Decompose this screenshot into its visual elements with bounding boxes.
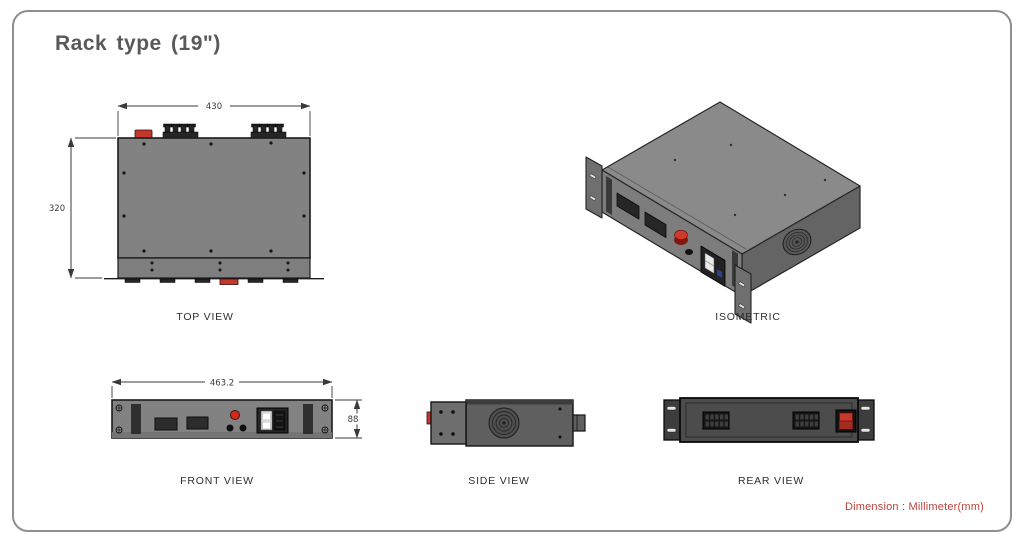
- front-black-button-2: [240, 425, 247, 432]
- front-panel-tabs: [125, 279, 298, 285]
- front-view-drawing: 463.2: [95, 370, 385, 470]
- side-view-drawing: [420, 390, 600, 460]
- terminal-block-2: [251, 124, 286, 138]
- iso-black-button: [685, 249, 693, 255]
- front-vent-right: [303, 404, 313, 434]
- chassis-top-body: [118, 138, 310, 258]
- isometric-drawing: [575, 85, 885, 310]
- front-display-window-1: [155, 418, 177, 430]
- top-width-value: 430: [206, 102, 222, 112]
- front-width-value: 463.2: [210, 379, 234, 389]
- side-view-label: SIDE VIEW: [468, 475, 529, 487]
- front-vent-left: [131, 404, 141, 434]
- top-depth-value: 320: [49, 204, 65, 214]
- front-panel-bottom-strip: [112, 432, 332, 438]
- side-front-block: [431, 402, 466, 444]
- front-red-switch-top: [220, 279, 238, 285]
- isometric-label: ISOMETRIC: [715, 311, 781, 323]
- iso-red-knob: [674, 230, 688, 245]
- front-power-inlet: [257, 408, 288, 433]
- front-red-button: [231, 411, 240, 420]
- terminal-block-1: [163, 124, 198, 138]
- rear-power-switch: [135, 130, 152, 138]
- front-width-dimension: 463.2: [112, 377, 332, 399]
- top-view-label: TOP VIEW: [176, 311, 233, 323]
- rear-power-rocker-switch: [836, 410, 856, 432]
- front-display-window-2: [187, 417, 208, 429]
- front-height-value: 88: [348, 415, 359, 425]
- dimension-unit-note: Dimension : Millimeter(mm): [845, 501, 984, 513]
- top-depth-dimension: 320: [49, 138, 116, 278]
- front-height-dimension: 88: [335, 400, 362, 438]
- front-view-label: FRONT VIEW: [180, 475, 254, 487]
- front-flange: [118, 258, 310, 278]
- iso-vent-left: [606, 176, 612, 215]
- sheet-title: Rack type (19"): [55, 32, 221, 56]
- top-view-drawing: 430 320: [40, 88, 340, 298]
- rear-view-label: REAR VIEW: [738, 475, 804, 487]
- side-fan-icon: [489, 408, 519, 438]
- rear-view-drawing: [655, 390, 895, 460]
- side-top-strip: [466, 400, 573, 405]
- rear-terminal-block-1: [703, 412, 729, 429]
- side-rear-tab: [573, 415, 585, 431]
- rear-terminal-block-2: [793, 412, 819, 429]
- front-black-button-1: [227, 425, 234, 432]
- drawing-sheet: Rack type (19") 430 320: [0, 0, 1024, 544]
